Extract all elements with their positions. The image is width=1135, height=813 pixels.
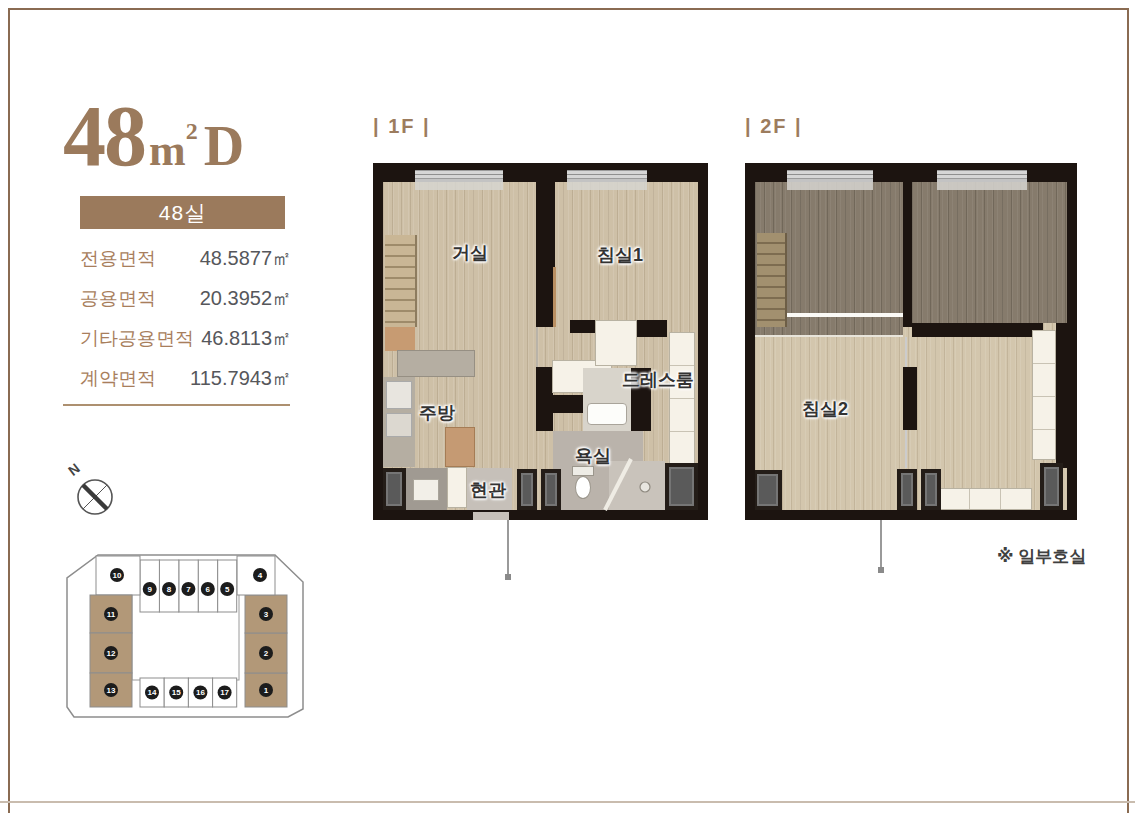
staircase-2f	[757, 233, 787, 327]
room-label-kitchen: 주방	[419, 401, 455, 425]
footnote: ※ 일부호실	[997, 545, 1086, 568]
brochure-page: 48m2D 48실 전용면적 48.5877㎡ 공용면적 20.3952㎡ 기타…	[0, 0, 1135, 813]
site-unit-number: 2	[264, 649, 269, 658]
floorplan-2f: 침실2	[745, 163, 1077, 520]
utility-box	[897, 469, 917, 510]
room-label-bedroom2: 침실2	[802, 397, 848, 421]
utility-box	[1040, 463, 1063, 510]
unit-type-letter: D	[204, 115, 244, 177]
table-divider	[63, 404, 290, 406]
site-unit-number: 14	[148, 688, 157, 697]
area-label: 기타공용면적	[80, 326, 194, 352]
entry-marker-1f	[507, 520, 509, 575]
site-unit-number: 11	[107, 610, 116, 619]
site-unit-number: 3	[264, 610, 269, 619]
site-unit-number: 9	[147, 585, 152, 594]
area-row-exclusive: 전용면적 48.5877㎡	[80, 246, 292, 276]
site-unit-number: 6	[206, 585, 211, 594]
site-unit-number: 17	[220, 688, 229, 697]
area-value: 46.8113㎡	[201, 325, 292, 352]
site-unit-number: 13	[107, 686, 116, 695]
area-label: 계약면적	[80, 366, 156, 392]
wardrobe-right	[1032, 330, 1056, 460]
page-bottom-line	[0, 801, 1135, 803]
site-unit-number: 5	[225, 585, 230, 594]
area-value: 115.7943㎡	[190, 365, 292, 392]
site-unit-number: 7	[186, 585, 191, 594]
unit-type-title: 48m2D	[63, 86, 244, 186]
floor1-label: | 1F |	[373, 115, 431, 138]
area-label: 공용면적	[80, 286, 156, 312]
area-row-other-common: 기타공용면적 46.8113㎡	[80, 326, 292, 356]
area-value: 48.5877㎡	[200, 245, 292, 272]
room-label-living: 거실	[452, 241, 488, 265]
site-unit-number: 12	[107, 649, 116, 658]
site-unit-number: 15	[172, 688, 181, 697]
floor2-label: | 2F |	[745, 115, 803, 138]
site-unit-number: 8	[167, 585, 172, 594]
site-unit-number: 4	[258, 571, 263, 580]
site-unit-number: 16	[196, 688, 205, 697]
utility-box	[753, 470, 782, 510]
room-label-bedroom1: 침실1	[597, 243, 643, 267]
unit-size-superscript: 2	[186, 118, 198, 144]
unit-size-unit: m	[149, 126, 186, 175]
compass-icon: N	[60, 460, 124, 524]
window	[787, 170, 873, 182]
unit-count-badge: 48실	[80, 196, 285, 229]
wardrobe-bottom	[938, 488, 1032, 510]
area-row-common: 공용면적 20.3952㎡	[80, 286, 292, 316]
unit-size-number: 48	[63, 88, 145, 184]
floorplan-1f: 거실 침실1 드레스룸 주방 욕실 현관	[373, 163, 708, 520]
void-area-right	[912, 182, 1067, 323]
room-label-bath: 욕실	[575, 444, 611, 468]
building-site-plan: 1234567891011121314151617	[62, 551, 312, 723]
room-label-dressroom: 드레스룸	[622, 368, 694, 392]
area-label: 전용면적	[80, 246, 156, 272]
area-value: 20.3952㎡	[200, 285, 292, 312]
compass-north-label: N	[65, 460, 83, 479]
railing	[780, 313, 903, 317]
entry-marker-2f	[880, 520, 882, 568]
window	[937, 170, 1027, 182]
area-row-contract: 계약면적 115.7943㎡	[80, 366, 292, 396]
site-unit-number: 10	[113, 571, 122, 580]
site-unit-number: 1	[264, 686, 269, 695]
shower-head	[640, 482, 650, 492]
utility-box	[921, 469, 941, 510]
room-label-entrance: 현관	[470, 478, 506, 502]
